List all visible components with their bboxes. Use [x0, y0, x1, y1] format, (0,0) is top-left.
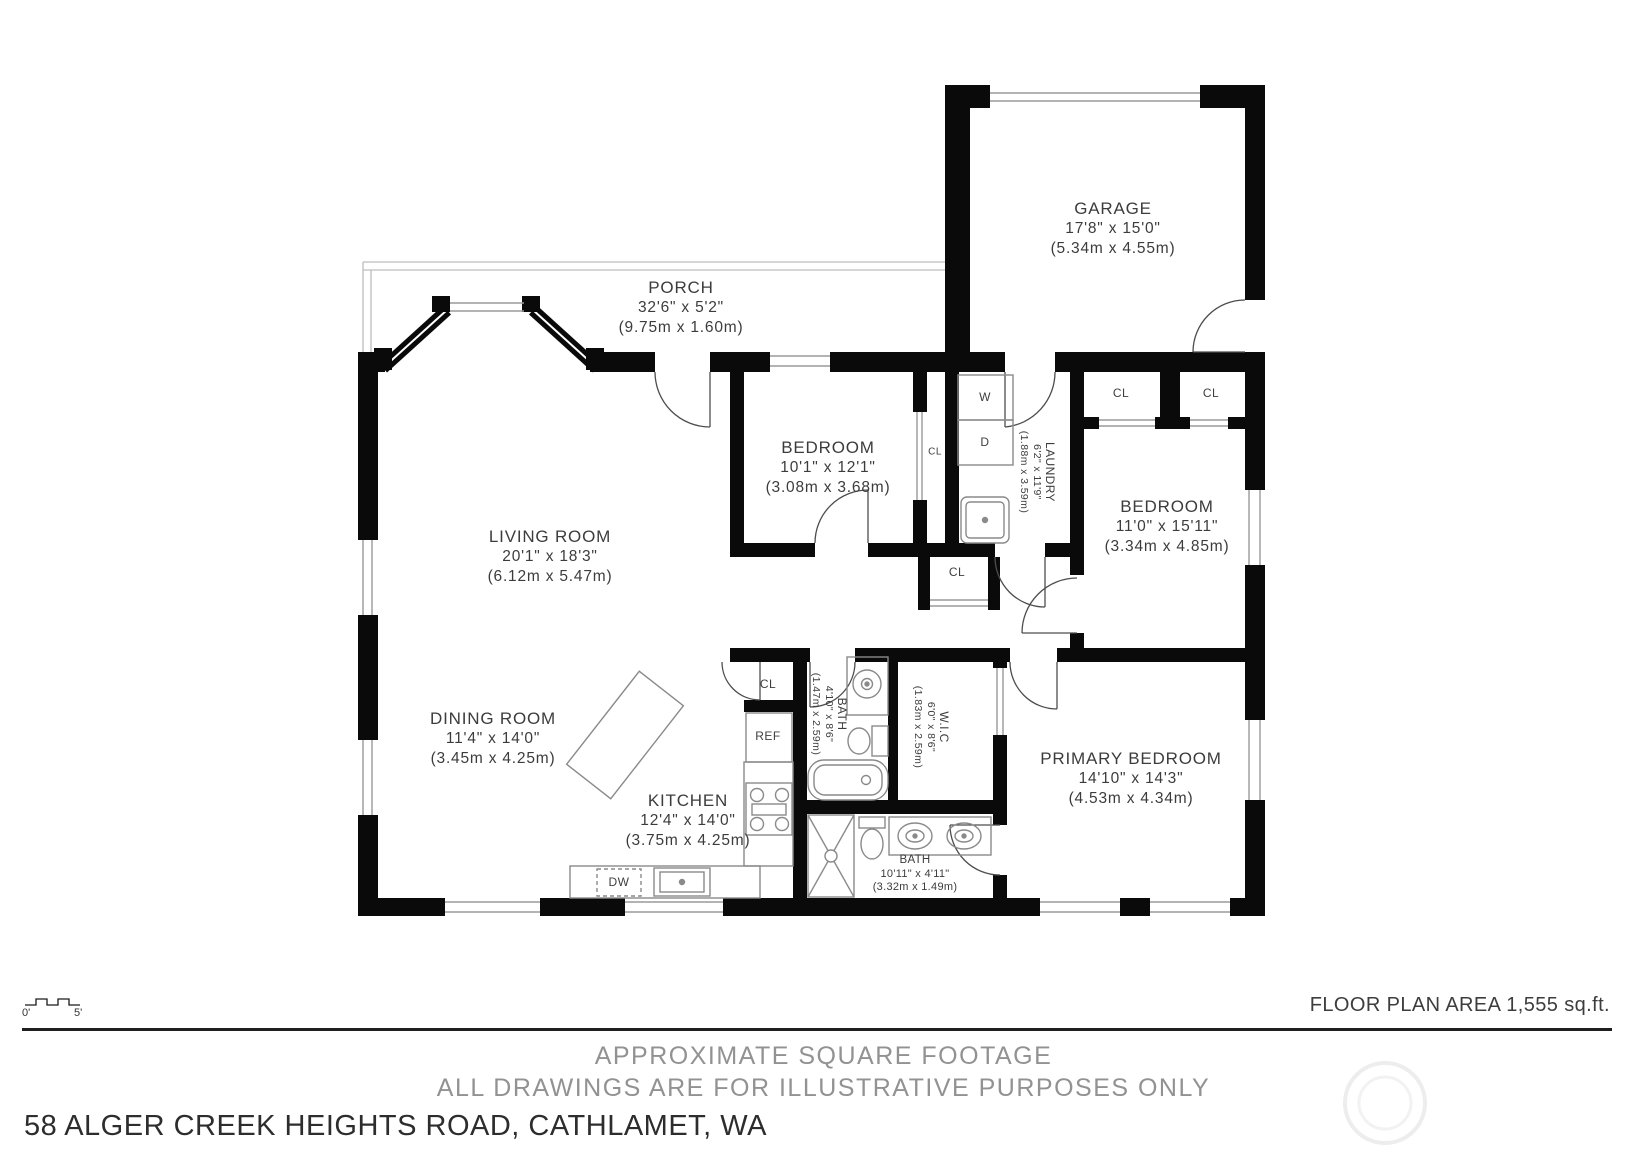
room-metric: (5.34m x 4.55m) [1051, 239, 1176, 258]
dryer-tag: D [980, 435, 989, 449]
room-metric: (4.53m x 4.34m) [1040, 789, 1221, 808]
kitchen-sink-icon [654, 868, 710, 896]
room-dims: 10'1" x 12'1" [766, 458, 891, 477]
room-label-bath-2: BATH 10'11" x 4'11" (3.32m x 1.49m) [873, 854, 958, 894]
double-vanity-icon [889, 817, 991, 855]
room-name: KITCHEN [626, 790, 751, 811]
room-dims: 20'1" x 18'3" [488, 547, 613, 566]
scale-bar [25, 999, 80, 1005]
disclaimer-line-1: APPROXIMATE SQUARE FOOTAGE [0, 1042, 1647, 1071]
room-dims: 4'10" x 8'6" [822, 673, 835, 755]
room-label-primary-bedroom: PRIMARY BEDROOM 14'10" x 14'3" (4.53m x … [1040, 748, 1221, 808]
stove-icon [746, 783, 792, 835]
closet-tag-hall: CL [949, 565, 965, 579]
room-metric: (1.83m x 2.59m) [911, 686, 924, 768]
room-metric: (6.12m x 5.47m) [488, 567, 613, 586]
room-name: GARAGE [1051, 198, 1176, 219]
room-label-bedroom-2: BEDROOM 11'0" x 15'11" (3.34m x 4.85m) [1105, 496, 1230, 556]
room-name: LAUNDRY [1042, 431, 1056, 513]
room-label-dining-room: DINING ROOM 11'4" x 14'0" (3.45m x 4.25m… [430, 708, 556, 768]
room-dims: 6'0" x 8'6" [924, 686, 937, 768]
room-label-porch: PORCH 32'6" x 5'2" (9.75m x 1.60m) [619, 277, 744, 337]
room-metric: (3.32m x 1.49m) [873, 881, 958, 894]
floor-plan-drawing [0, 0, 1647, 1164]
room-name: BEDROOM [1105, 496, 1230, 517]
refrigerator-tag: REF [755, 729, 781, 743]
room-metric: (1.47m x 2.59m) [809, 673, 822, 755]
dining-table-icon [567, 671, 684, 798]
room-name: DINING ROOM [430, 708, 556, 729]
room-dims: 14'10" x 14'3" [1040, 769, 1221, 788]
shower-icon [808, 815, 854, 897]
room-dims: 11'4" x 14'0" [430, 729, 556, 748]
closet-tag-bedroom2-left: CL [1113, 386, 1129, 400]
scale-end-label: 5' [74, 1007, 82, 1019]
scale-start-label: 0' [22, 1007, 30, 1019]
room-dims: 32'6" x 5'2" [619, 298, 744, 317]
room-metric: (1.88m x 3.59m) [1017, 431, 1030, 513]
room-label-laundry: LAUNDRY 6'2" x 11'9" (1.88m x 3.59m) [1017, 431, 1057, 513]
room-name: W.I.C [936, 686, 950, 768]
bathtub-icon [808, 760, 888, 800]
footer-divider-line [22, 1028, 1612, 1031]
room-dims: 10'11" x 4'11" [873, 868, 958, 881]
room-label-wic: W.I.C 6'0" x 8'6" (1.83m x 2.59m) [911, 686, 951, 768]
toilet-icon-2 [859, 817, 885, 859]
dishwasher-tag: DW [609, 875, 630, 889]
room-label-bath-1: BATH 4'10" x 8'6" (1.47m x 2.59m) [809, 673, 849, 755]
closet-tag-kitchen: CL [760, 677, 776, 691]
room-metric: (9.75m x 1.60m) [619, 318, 744, 337]
toilet-icon [848, 726, 888, 756]
room-metric: (3.75m x 4.25m) [626, 831, 751, 850]
room-label-bedroom-1: BEDROOM 10'1" x 12'1" (3.08m x 3.68m) [766, 437, 891, 497]
room-name: PRIMARY BEDROOM [1040, 748, 1221, 769]
room-name: PORCH [619, 277, 744, 298]
room-name: BEDROOM [766, 437, 891, 458]
closet-tag-bedroom1: CL [928, 447, 942, 458]
room-dims: 17'8" x 15'0" [1051, 219, 1176, 238]
vanity-sink-icon [847, 657, 888, 715]
floor-plan-page: GARAGE 17'8" x 15'0" (5.34m x 4.55m) POR… [0, 0, 1647, 1164]
floor-plan-area-note: FLOOR PLAN AREA 1,555 sq.ft. [1310, 994, 1610, 1017]
laundry-sink-icon [961, 497, 1009, 543]
washer-tag: W [979, 390, 991, 404]
room-dims: 6'2" x 11'9" [1030, 431, 1043, 513]
room-dims: 11'0" x 15'11" [1105, 517, 1230, 536]
disclaimer-line-2: ALL DRAWINGS ARE FOR ILLUSTRATIVE PURPOS… [0, 1074, 1647, 1103]
closet-tag-bedroom2-right: CL [1203, 386, 1219, 400]
room-label-kitchen: KITCHEN 12'4" x 14'0" (3.75m x 4.25m) [626, 790, 751, 850]
room-label-garage: GARAGE 17'8" x 15'0" (5.34m x 4.55m) [1051, 198, 1176, 258]
room-label-living-room: LIVING ROOM 20'1" x 18'3" (6.12m x 5.47m… [488, 526, 613, 586]
room-dims: 12'4" x 14'0" [626, 811, 751, 830]
room-name: BATH [873, 854, 958, 868]
property-address: 58 ALGER CREEK HEIGHTS ROAD, CATHLAMET, … [24, 1110, 767, 1143]
room-metric: (3.45m x 4.25m) [430, 749, 556, 768]
bay-window [374, 296, 604, 370]
room-metric: (3.08m x 3.68m) [766, 478, 891, 497]
room-metric: (3.34m x 4.85m) [1105, 537, 1230, 556]
room-name: BATH [834, 673, 848, 755]
room-name: LIVING ROOM [488, 526, 613, 547]
